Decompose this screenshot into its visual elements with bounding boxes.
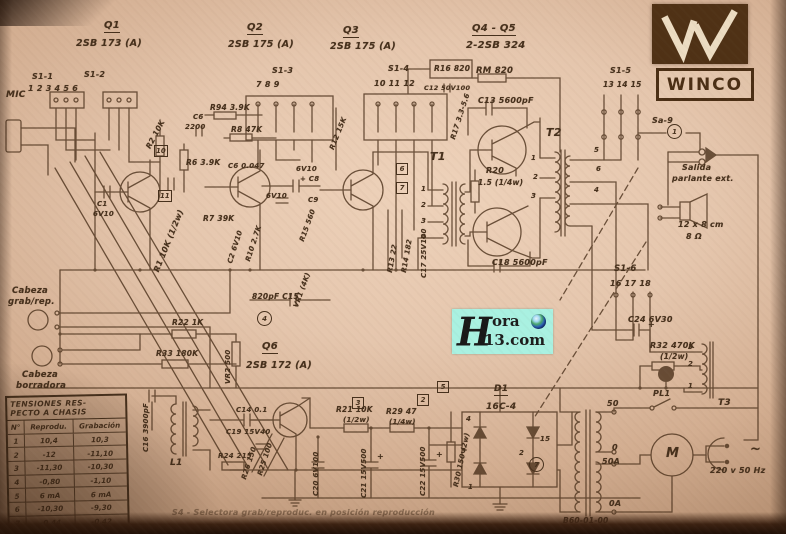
contact-number-mark: 1 <box>667 124 682 139</box>
contact-number-mark: 7 <box>396 182 408 194</box>
contact-number-mark: 7 <box>529 457 544 472</box>
voltage-table-title: TENSIONES RES- PECTO A CHASIS <box>7 395 125 420</box>
contact-number-mark: 11 <box>158 190 172 202</box>
watermark-text-top: ora <box>492 312 520 330</box>
voltage-table: TENSIONES RES- PECTO A CHASISN°Reprodu.G… <box>5 393 130 534</box>
winco-wordmark: WINCO <box>656 68 754 101</box>
contact-number-mark: 4 <box>257 311 272 326</box>
contact-number-mark: 5 <box>437 381 449 393</box>
watermark-text-bottom: 13.com <box>484 331 545 349</box>
contact-number-mark: 2 <box>417 394 429 406</box>
contact-number-mark: 3 <box>352 397 364 409</box>
winco-w-icon <box>652 4 748 64</box>
schematic-photo: Q12SB 173 (A)Q22SB 175 (A)Q32SB 175 (A)Q… <box>0 0 786 534</box>
globe-icon <box>531 314 546 329</box>
contact-number-mark: 10 <box>154 145 168 157</box>
watermark: H ora 13.com <box>452 309 553 354</box>
contact-number-mark: 6 <box>396 163 408 175</box>
winco-logo <box>652 4 748 64</box>
